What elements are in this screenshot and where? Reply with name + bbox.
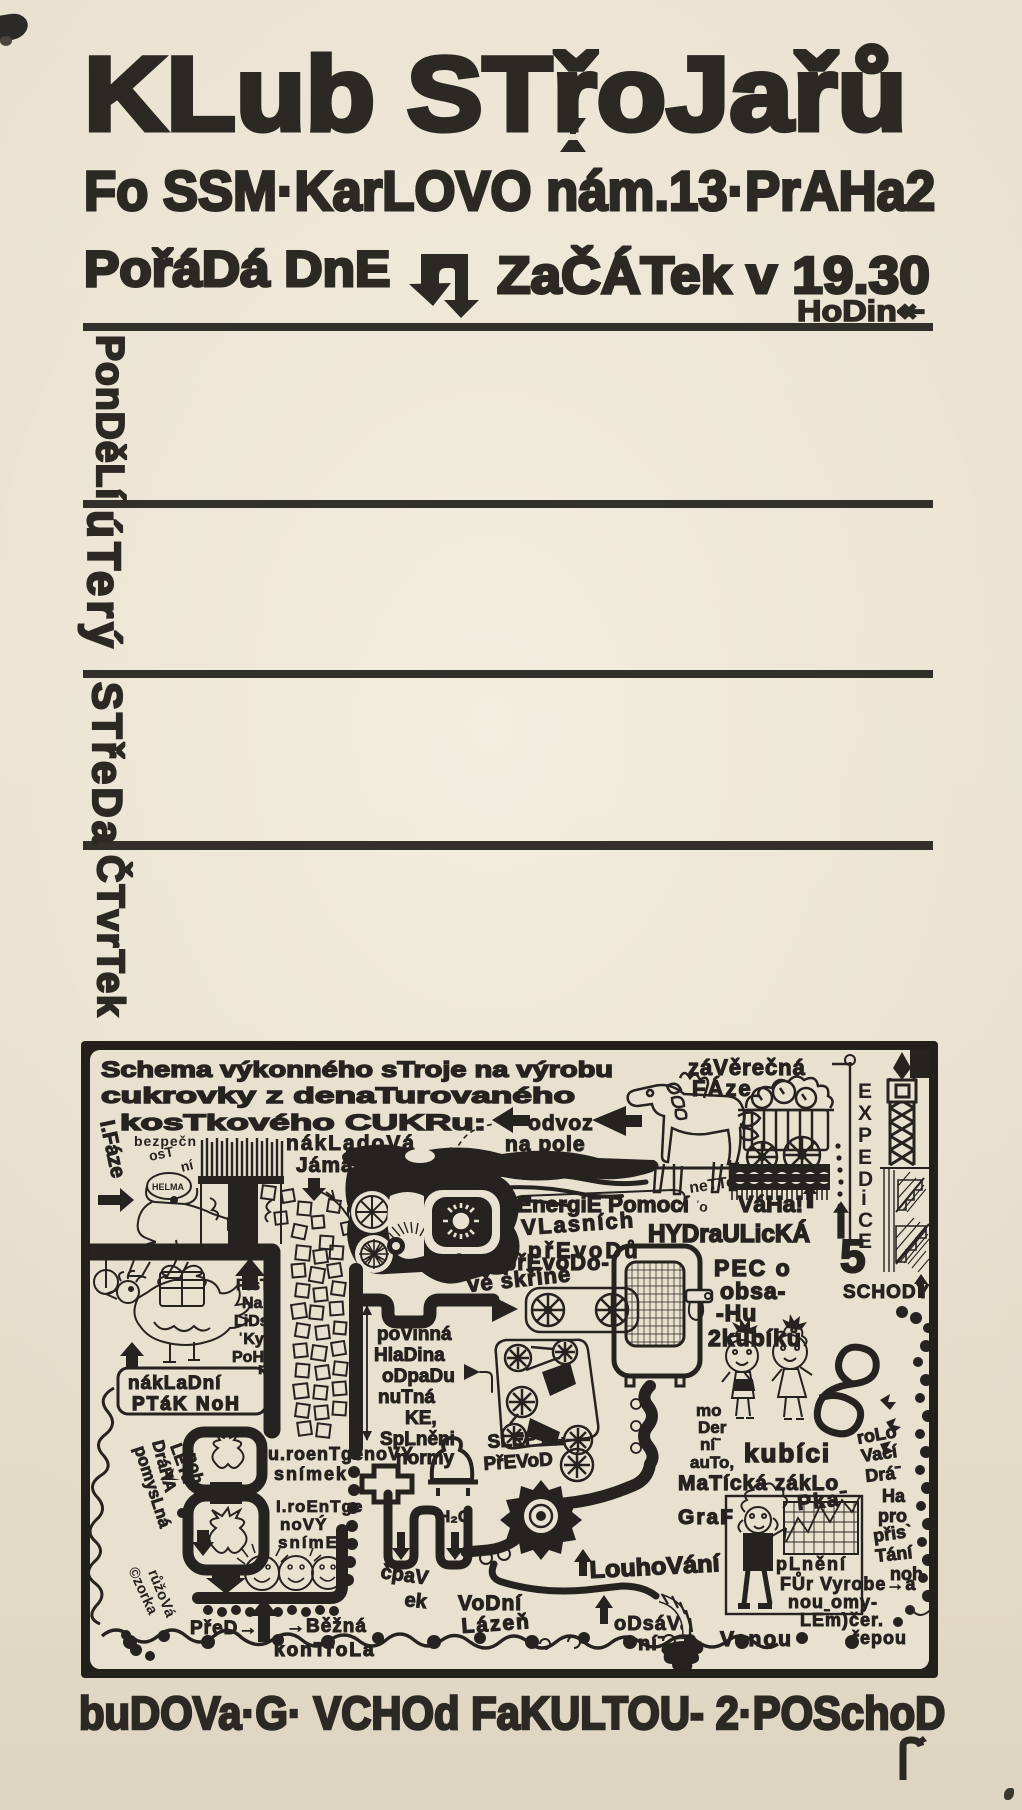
svg-text:HlaDina: HlaDina (374, 1345, 445, 1366)
svg-text:-Hu: -Hu (716, 1300, 757, 1326)
svg-text:SCHODY: SCHODY (843, 1282, 929, 1303)
svg-text:ní: ní (179, 1156, 196, 1175)
svg-text:Ha: Ha (882, 1486, 906, 1506)
svg-text:I.roEnTge: I.roEnTge (276, 1497, 363, 1516)
svg-text:cukrovky z denaTurovaného: cukrovky z denaTurovaného (101, 1083, 575, 1108)
svg-text:nákLaDní: nákLaDní (128, 1373, 222, 1394)
svg-text:C: C (858, 1209, 873, 1232)
svg-text:Dráˉ: Dráˉ (864, 1462, 902, 1486)
svg-text:i: i (861, 1187, 867, 1210)
svg-text:5: 5 (840, 1230, 866, 1282)
svg-text:ek: ek (403, 1589, 428, 1613)
svg-text:VáHa!: VáHa! (738, 1191, 803, 1217)
svg-text:Lázeň: Lázeň (461, 1610, 532, 1638)
svg-text:snímEk: snímEk (278, 1533, 350, 1552)
svg-text:noVÝ: noVÝ (280, 1515, 327, 1534)
svg-text:SLEPÝ→: SLEPÝ→ (487, 1425, 570, 1453)
svg-text:noha: noha (182, 1451, 209, 1495)
svg-text:čpaV: čpaV (379, 1561, 430, 1590)
svg-text:X: X (858, 1102, 872, 1125)
svg-text:LEm)čer.: LEm)čer. (800, 1610, 884, 1630)
svg-text:LouhoVání: LouhoVání (589, 1550, 722, 1584)
svg-text:Schema výkonného sTroje na výr: Schema výkonného sTroje na výrobu (101, 1057, 613, 1082)
svg-text:KE,: KE, (405, 1408, 437, 1429)
svg-text:PTáK NoH: PTáK NoH (132, 1394, 241, 1415)
svg-text:ˈKy: ˈKy (238, 1331, 264, 1348)
svg-text:nuTná: nuTná (378, 1387, 435, 1408)
svg-text:nouˍomy-: nouˍomy- (788, 1592, 878, 1612)
svg-text:poVinná: poVinná (377, 1324, 452, 1345)
svg-text:snímek: snímek (274, 1464, 348, 1484)
svg-text:řepou: řepou (852, 1628, 907, 1648)
svg-text:E: E (858, 1146, 872, 1169)
svg-text:P: P (858, 1124, 872, 1147)
svg-text:neTTo: neTTo (688, 1174, 737, 1197)
svg-text:oDpaDu: oDpaDu (382, 1366, 455, 1387)
svg-text:PísT: PísT (236, 1277, 270, 1294)
svg-text:H₂O: H₂O (438, 1507, 471, 1526)
svg-text:HELMA: HELMA (152, 1182, 184, 1192)
svg-text:Pkaˉ: Pkaˉ (796, 1487, 850, 1515)
svg-text:odvoz: odvoz (528, 1112, 594, 1135)
svg-text:PřEVoD: PřEVoD (483, 1449, 554, 1475)
svg-text:Tání: Tání (874, 1542, 914, 1566)
svg-text:pLnění: pLnění (776, 1554, 847, 1574)
svg-text:níˉ: níˉ (700, 1435, 721, 1454)
svg-text:u.roenTgenoVÝ: u.roenTgenoVÝ (268, 1443, 414, 1464)
svg-text:ˈo: ˈo (693, 1197, 709, 1215)
svg-text:na pole: na pole (505, 1133, 586, 1156)
svg-text:kubíci: kubíci (744, 1438, 831, 1468)
svg-text:→Běžná: →Běžná (286, 1616, 367, 1637)
svg-text:auTo,: auTo, (690, 1453, 734, 1472)
svg-text:noh: noh (890, 1564, 923, 1584)
svg-text:FÁze: FÁze (692, 1076, 753, 1101)
svg-text:E: E (858, 1080, 872, 1103)
svg-text:PřeD→: PřeD→ (190, 1618, 258, 1639)
